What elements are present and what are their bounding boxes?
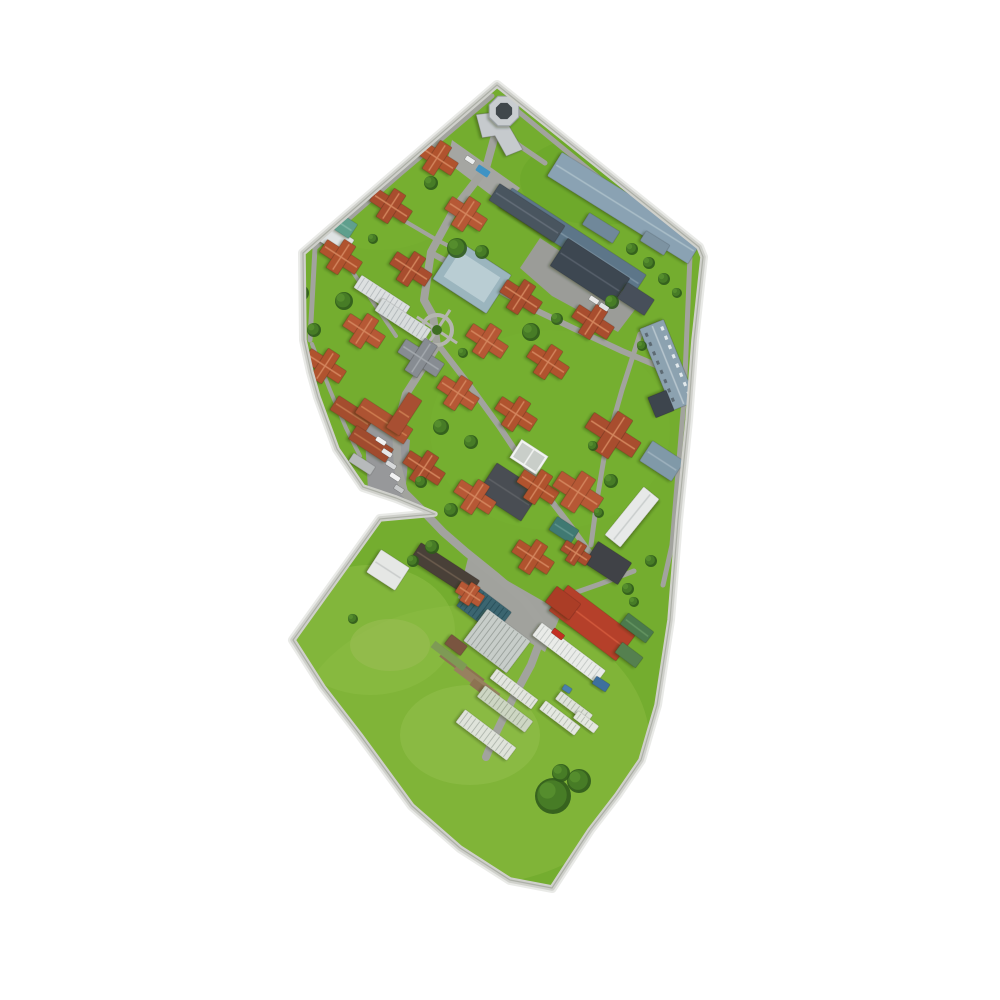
tree — [637, 341, 647, 351]
tree — [433, 419, 449, 435]
aerial-site-map — [0, 0, 1000, 1000]
site-map-canvas — [0, 0, 1000, 1000]
tree — [447, 238, 467, 258]
tree — [622, 583, 634, 595]
tree — [626, 243, 638, 255]
tree — [551, 313, 563, 325]
tree — [348, 614, 358, 624]
tree — [567, 769, 591, 793]
tree — [458, 348, 468, 358]
tree — [658, 273, 670, 285]
tree — [424, 176, 438, 190]
tree — [444, 503, 458, 517]
tree — [645, 555, 657, 567]
tree — [588, 441, 598, 451]
tree — [425, 540, 439, 554]
tree — [594, 508, 604, 518]
tree — [535, 778, 571, 814]
tree — [475, 245, 489, 259]
tree — [522, 323, 540, 341]
tree — [629, 597, 639, 607]
tree — [368, 234, 378, 244]
tree — [335, 292, 353, 310]
tree — [672, 288, 682, 298]
tree — [307, 323, 321, 337]
tree — [464, 435, 478, 449]
grass-patch-3 — [350, 619, 430, 671]
tree — [415, 476, 427, 488]
tree — [552, 764, 570, 782]
tree — [604, 474, 618, 488]
tree — [407, 555, 419, 567]
tree — [643, 257, 655, 269]
